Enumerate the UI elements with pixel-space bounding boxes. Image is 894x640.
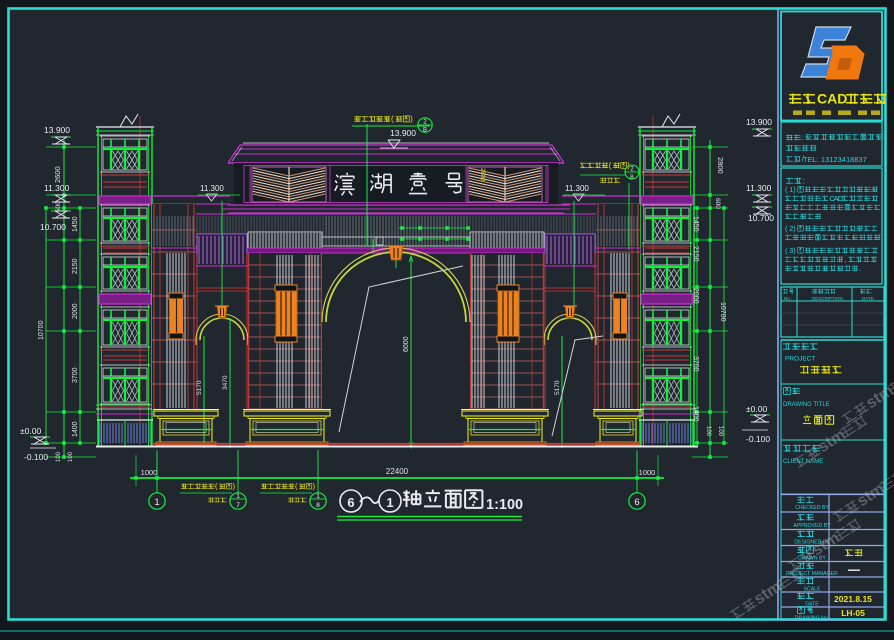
svg-text:(: ( — [391, 115, 394, 124]
svg-text:11.300: 11.300 — [200, 184, 224, 193]
svg-text:): ) — [410, 115, 413, 124]
svg-text:10700: 10700 — [719, 302, 726, 322]
svg-text:1000: 1000 — [141, 468, 158, 477]
svg-text:3700: 3700 — [692, 356, 699, 372]
svg-text:600: 600 — [714, 198, 721, 209]
svg-text:100: 100 — [68, 451, 74, 462]
svg-text:B: B — [423, 128, 427, 134]
svg-text:11.300: 11.300 — [565, 184, 589, 193]
svg-text:7: 7 — [236, 502, 240, 509]
svg-text:5170: 5170 — [554, 380, 561, 395]
svg-text:100: 100 — [56, 451, 62, 462]
svg-text:2800: 2800 — [716, 157, 725, 174]
svg-text:SCALE: SCALE — [803, 587, 821, 593]
svg-text:8: 8 — [316, 502, 320, 509]
svg-text:13.900: 13.900 — [746, 117, 772, 127]
svg-text:100: 100 — [705, 426, 711, 437]
svg-text:1450: 1450 — [692, 216, 699, 232]
svg-text:±0.00: ±0.00 — [746, 404, 767, 414]
svg-text:2000: 2000 — [692, 288, 699, 304]
svg-text:APPROVED BY: APPROVED BY — [793, 523, 831, 529]
svg-text:2150: 2150 — [692, 246, 699, 262]
svg-text:5170: 5170 — [196, 380, 203, 395]
svg-text:1: 1 — [154, 497, 159, 508]
svg-text:,: , — [844, 255, 846, 264]
svg-text:11.300: 11.300 — [44, 183, 70, 193]
svg-text:±0.00: ±0.00 — [20, 426, 41, 436]
svg-text:TEL: 13123418837: TEL: 13123418837 — [803, 155, 867, 164]
svg-text:10.700: 10.700 — [748, 213, 774, 223]
svg-text:DATE: DATE — [805, 602, 819, 608]
svg-text:2: 2 — [423, 119, 427, 126]
svg-text:1450: 1450 — [72, 216, 79, 232]
svg-text:1: 1 — [386, 495, 393, 510]
svg-text:CAD: CAD — [817, 91, 847, 107]
svg-text:.: . — [859, 264, 861, 273]
svg-text:DRAWING No.: DRAWING No. — [795, 616, 829, 622]
svg-text:1:100: 1:100 — [486, 497, 523, 513]
svg-text:B: B — [630, 175, 634, 181]
svg-text:22400: 22400 — [386, 467, 409, 476]
svg-text:DRAWING TITLE: DRAWING TITLE — [783, 402, 830, 408]
svg-text:2021.8.15: 2021.8.15 — [834, 594, 872, 604]
svg-text:1: 1 — [316, 493, 320, 500]
svg-text:PROJECT: PROJECT — [785, 356, 815, 363]
svg-text:11.300: 11.300 — [746, 183, 772, 193]
svg-text:2600: 2600 — [53, 166, 62, 183]
svg-text:600: 600 — [55, 201, 62, 212]
svg-text:1400: 1400 — [72, 421, 79, 437]
svg-text:No.: No. — [784, 296, 791, 301]
svg-text:13.900: 13.900 — [390, 128, 416, 138]
svg-text:CHECKED BY: CHECKED BY — [795, 505, 829, 511]
svg-text:1400: 1400 — [692, 406, 699, 422]
svg-text:6000: 6000 — [403, 336, 410, 352]
svg-text:3470: 3470 — [222, 375, 229, 390]
svg-text:(: ( — [609, 161, 612, 170]
svg-text:100: 100 — [717, 426, 723, 437]
svg-text:2800: 2800 — [479, 168, 485, 182]
svg-text::: : — [802, 133, 804, 142]
svg-text:1: 1 — [236, 493, 240, 500]
svg-text:-0.100: -0.100 — [746, 434, 770, 444]
svg-text:D: D — [838, 194, 844, 203]
svg-text:DESCRIPTION: DESCRIPTION — [812, 296, 843, 301]
svg-text:DATE: DATE — [862, 296, 874, 301]
svg-text:6: 6 — [347, 495, 354, 510]
svg-text:13.900: 13.900 — [44, 125, 70, 135]
svg-text:2150: 2150 — [72, 258, 79, 274]
svg-text:-0.100: -0.100 — [24, 452, 48, 462]
svg-text:3700: 3700 — [72, 367, 79, 383]
svg-text:LH-05: LH-05 — [841, 608, 865, 618]
svg-text:6: 6 — [634, 497, 639, 508]
svg-text:2000: 2000 — [72, 303, 79, 319]
svg-text:1000: 1000 — [639, 468, 656, 477]
svg-text::: : — [803, 176, 805, 186]
svg-text:10700: 10700 — [38, 320, 45, 340]
svg-text:10.700: 10.700 — [40, 222, 66, 232]
